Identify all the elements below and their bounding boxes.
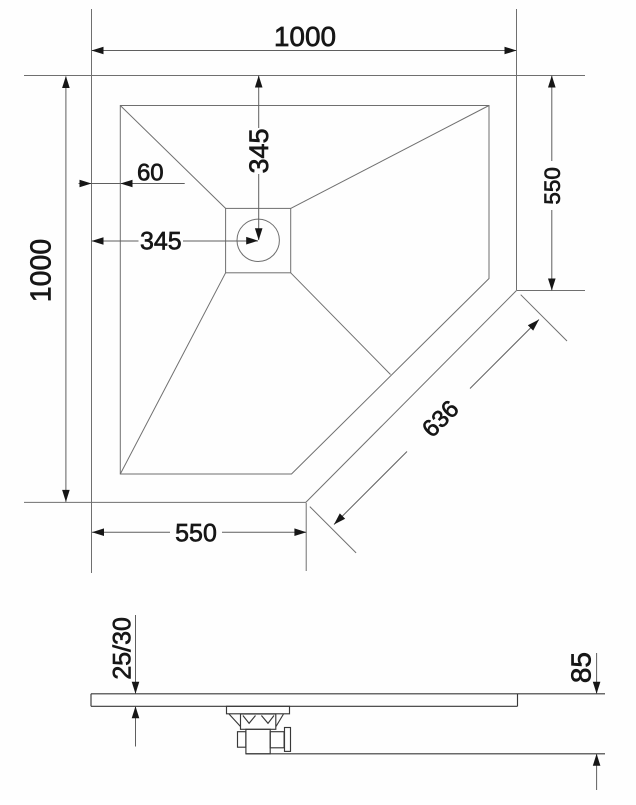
svg-text:550: 550 (540, 167, 565, 205)
svg-text:550: 550 (175, 520, 217, 548)
svg-text:345: 345 (244, 128, 274, 173)
svg-text:25/30: 25/30 (108, 617, 136, 680)
svg-text:1000: 1000 (274, 21, 336, 52)
svg-text:636: 636 (417, 395, 464, 442)
svg-text:60: 60 (137, 160, 164, 187)
svg-text:1000: 1000 (26, 239, 58, 302)
svg-text:85: 85 (566, 652, 597, 683)
svg-text:345: 345 (140, 228, 182, 256)
